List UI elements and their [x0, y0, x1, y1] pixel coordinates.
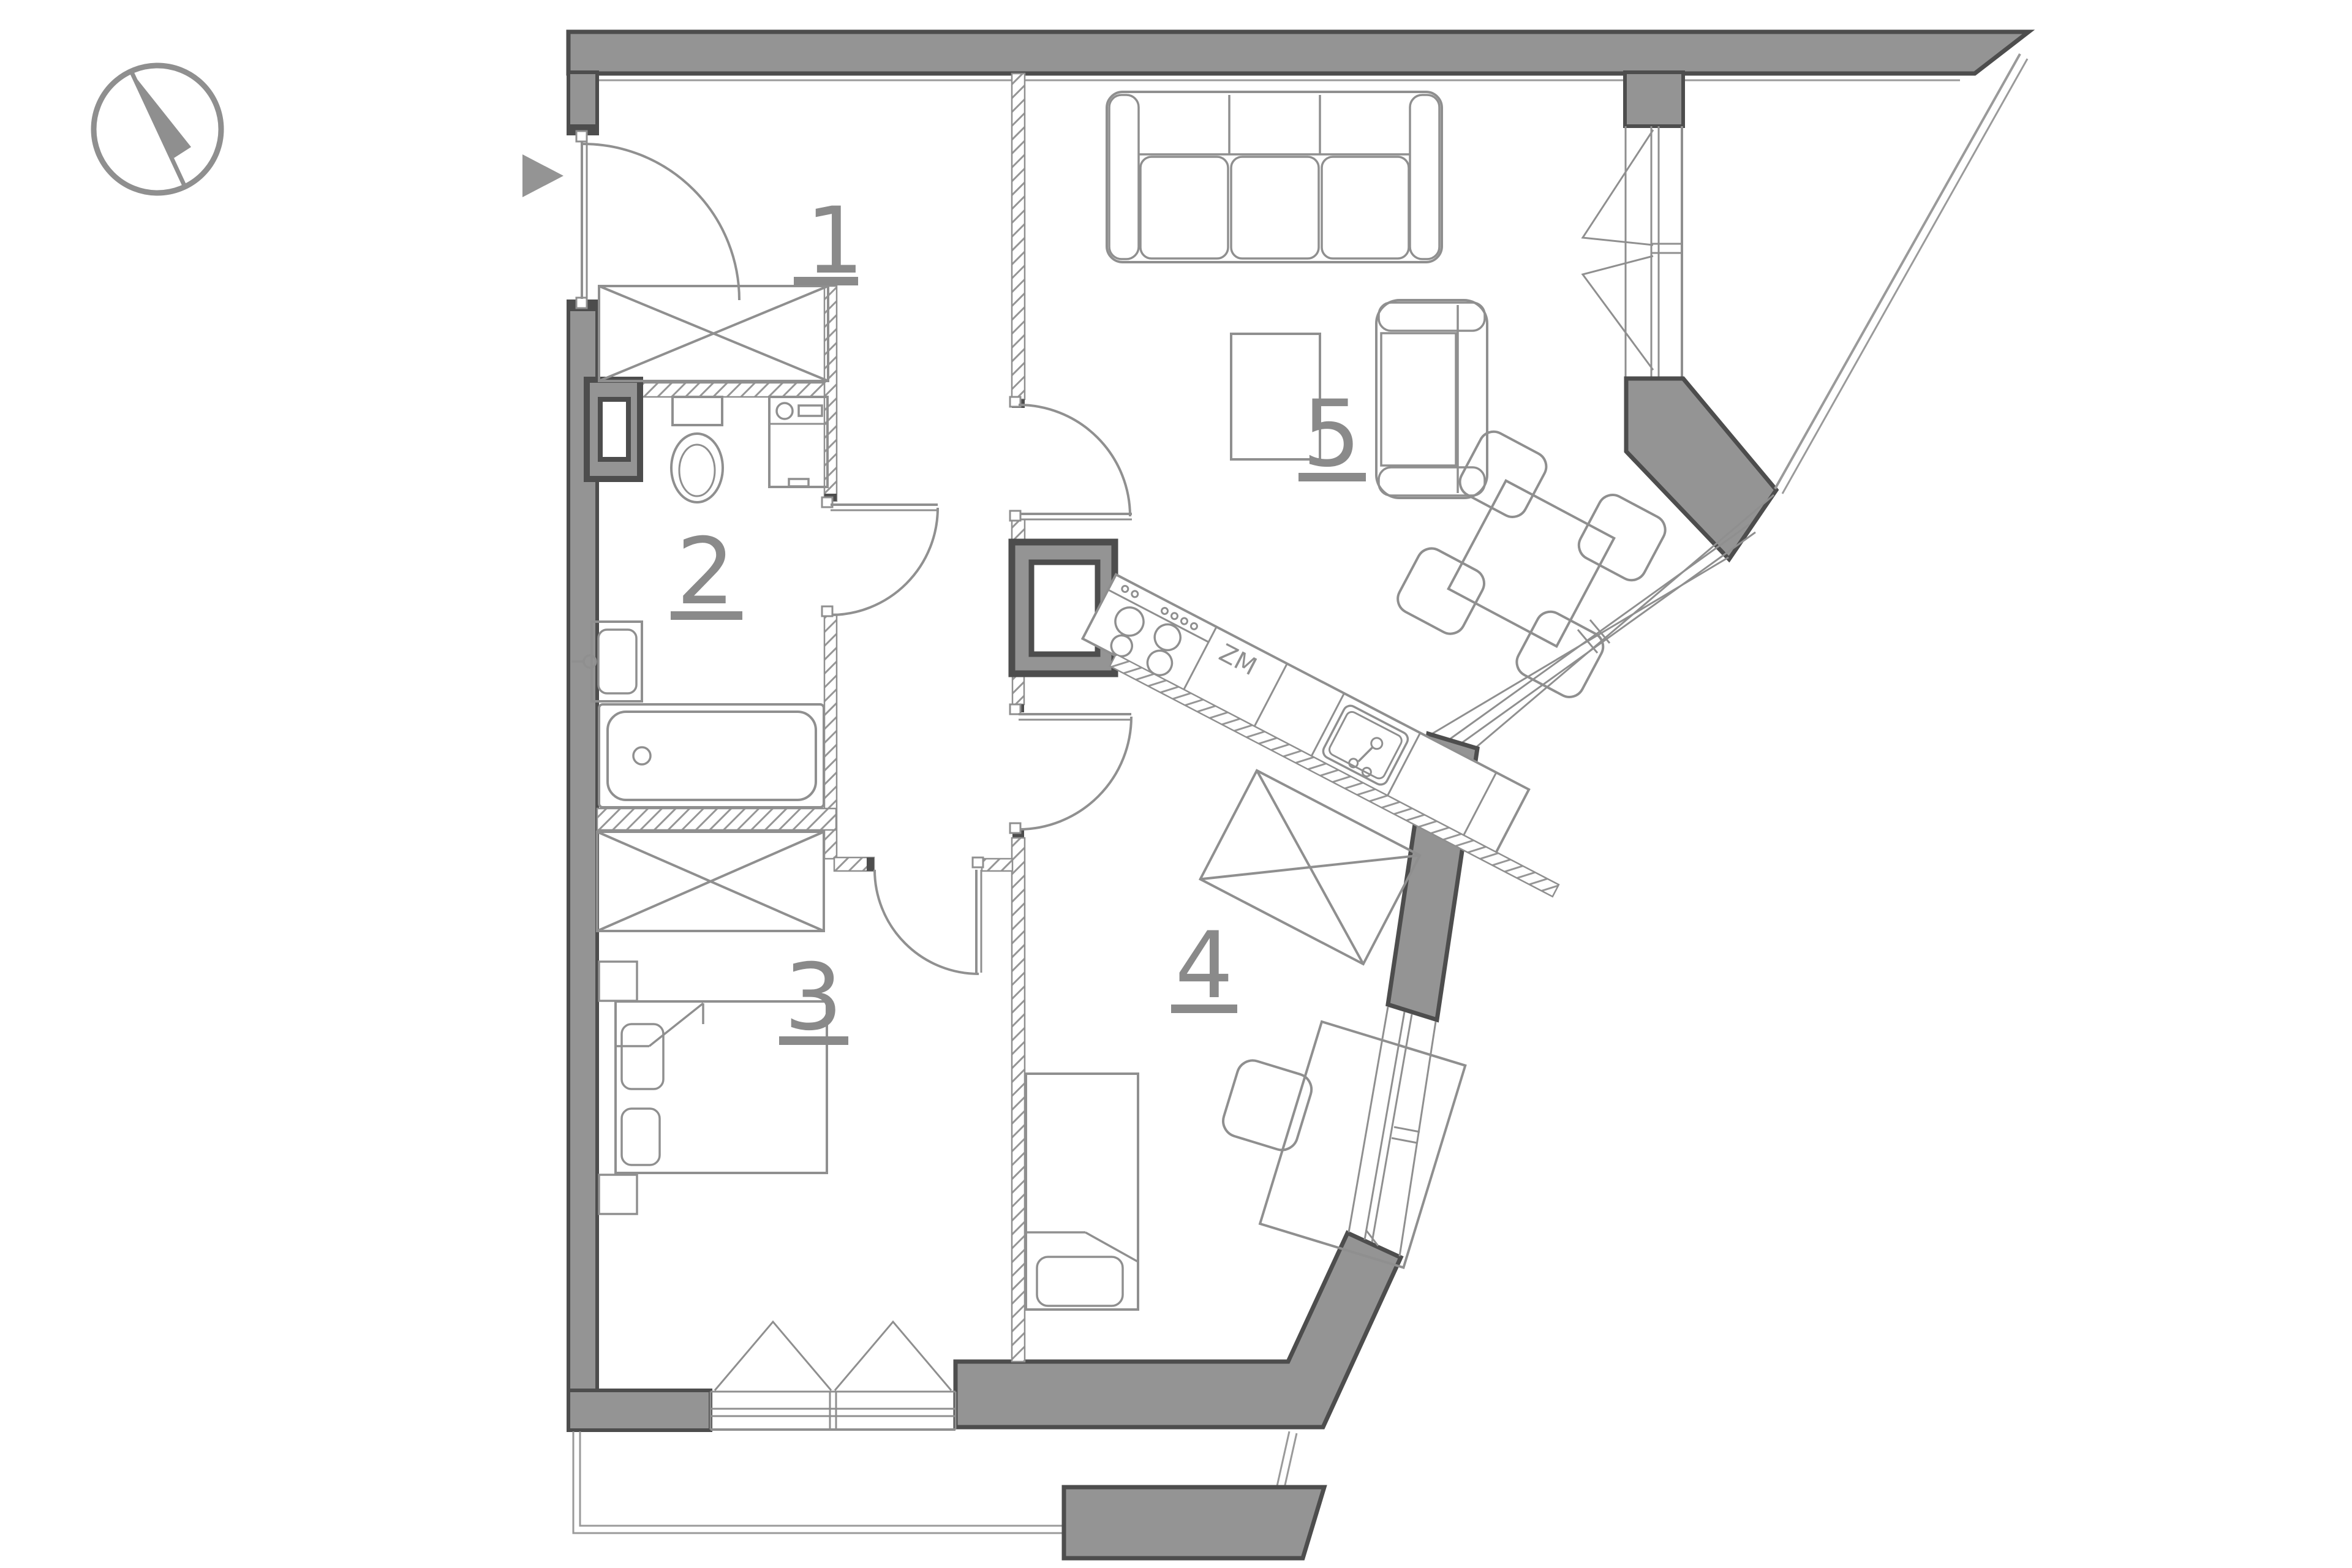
room2-underline — [671, 611, 742, 620]
room3-door — [875, 858, 983, 974]
sofa — [1107, 92, 1442, 262]
room3-label: 3 — [784, 944, 842, 1051]
room5-label: 5 — [1302, 381, 1360, 488]
room2-label: 2 — [676, 519, 734, 625]
bottom-wall-left — [568, 1390, 710, 1430]
room3-wardrobe — [597, 832, 824, 931]
terrace-railing — [1775, 54, 2027, 494]
dining-chair — [1393, 543, 1490, 639]
bathroom-north-wall — [640, 383, 824, 397]
hall-livingroom-wall — [1012, 73, 1025, 399]
dining-table — [1449, 481, 1614, 646]
room4-label: 4 — [1175, 913, 1233, 1019]
entrance-arrow-icon — [522, 154, 563, 197]
top-wall — [568, 32, 2029, 73]
room3-window — [710, 1322, 956, 1430]
casement-triangle-icon — [1583, 256, 1653, 370]
casement-triangle-icon — [835, 1322, 951, 1390]
bathtub — [599, 704, 824, 807]
casement-triangle-icon — [1583, 130, 1653, 245]
bathroom-shaft — [587, 380, 640, 479]
entrance-jamb-top — [576, 131, 587, 141]
sofa-cushion — [1140, 157, 1228, 258]
room1-underline — [794, 277, 858, 285]
north-compass-icon — [94, 66, 221, 193]
pillow — [1037, 1257, 1123, 1306]
pillow — [622, 1024, 663, 1089]
nightstand — [599, 962, 637, 1001]
washing-machine — [769, 397, 827, 487]
corridor-south-wall-b — [982, 859, 1012, 871]
right-pier-top — [1625, 72, 1683, 126]
dining-chair — [1574, 490, 1670, 586]
casement-triangle-icon — [715, 1322, 831, 1390]
balcony-divider-slab — [1064, 1487, 1324, 1558]
room3-underline — [779, 1036, 848, 1045]
room4-door — [1010, 704, 1131, 833]
sofa-armrest — [1410, 95, 1439, 259]
dining-chair — [1455, 426, 1551, 522]
room3-room4-wall — [1012, 838, 1025, 1362]
floor-plan-page: ZM — [0, 0, 2352, 1568]
livingroom-door — [1010, 397, 1132, 521]
dining-chair — [1512, 606, 1608, 702]
sofa-armrest — [1109, 95, 1139, 259]
kitchen-counter: ZM — [1083, 575, 1529, 854]
entrance-jamb-bottom — [576, 298, 587, 308]
room4-underline — [1171, 1005, 1237, 1013]
right-wall-corner-pier — [1626, 379, 1776, 559]
room5-underline — [1298, 473, 1366, 481]
desk — [1260, 1022, 1465, 1268]
nightstand — [599, 1175, 637, 1214]
armchair — [1376, 300, 1487, 498]
toilet — [671, 397, 723, 502]
sofa-cushion — [1322, 157, 1409, 258]
sofa-cushion — [1231, 157, 1319, 258]
bathroom-door — [822, 497, 938, 616]
pillow — [622, 1109, 660, 1165]
desk-chair — [1219, 1057, 1316, 1154]
floor-plan-drawing: ZM — [0, 0, 2352, 1568]
hall-wardrobe — [599, 286, 828, 381]
entrance-door-arc — [583, 144, 739, 300]
single-bed — [1026, 1074, 1138, 1310]
room5-window — [1583, 126, 1682, 379]
bathroom-south-wall — [597, 809, 836, 830]
